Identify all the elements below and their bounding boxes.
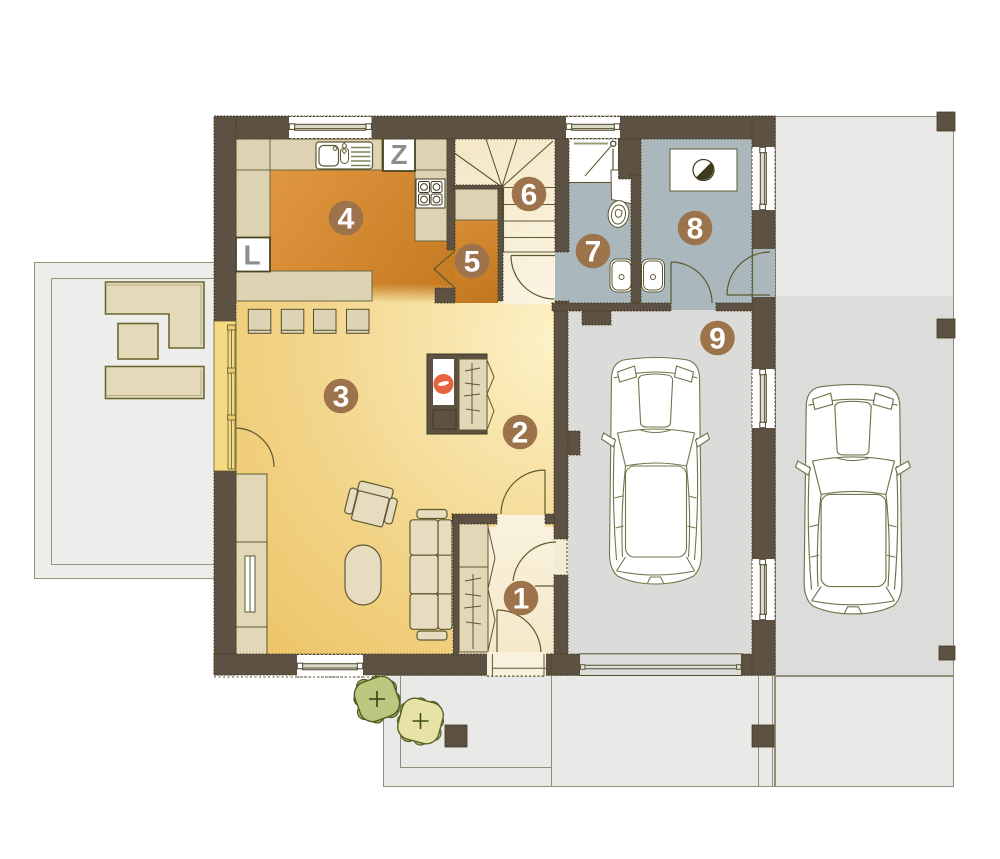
svg-text:9: 9 [709,323,726,356]
svg-text:4: 4 [338,203,355,236]
svg-text:Z: Z [390,139,407,170]
svg-text:3: 3 [333,381,350,414]
svg-text:2: 2 [512,417,529,450]
svg-text:L: L [243,240,260,271]
svg-text:7: 7 [585,236,602,269]
svg-text:5: 5 [464,246,481,279]
svg-text:6: 6 [521,179,538,212]
svg-text:1: 1 [513,583,530,616]
svg-text:8: 8 [687,213,704,246]
